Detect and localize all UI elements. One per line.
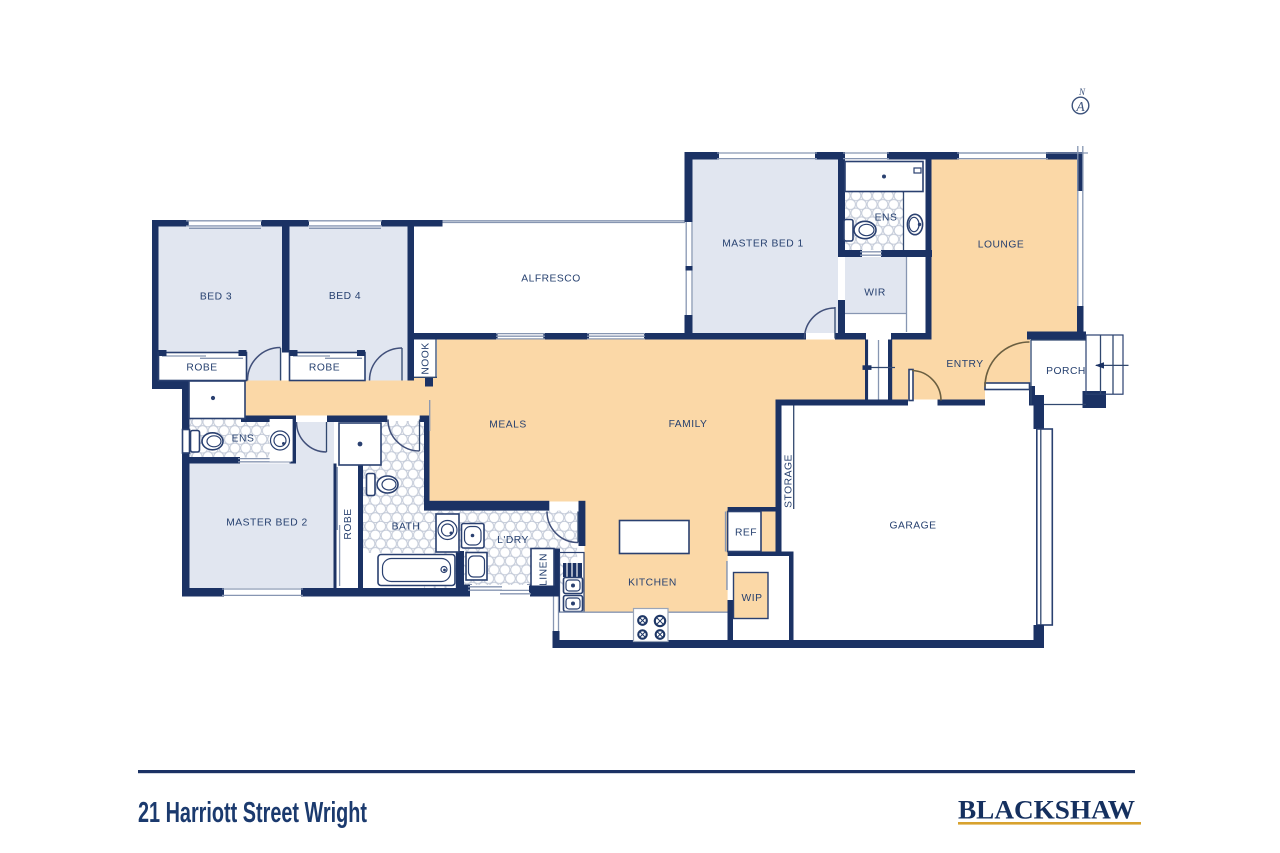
svg-text:MEALS: MEALS: [489, 420, 526, 431]
svg-text:NOOK: NOOK: [421, 342, 432, 374]
svg-text:BED 4: BED 4: [329, 291, 361, 302]
svg-text:ROBE: ROBE: [343, 508, 354, 539]
svg-text:ROBE: ROBE: [309, 363, 340, 374]
svg-text:WIP: WIP: [742, 593, 763, 604]
svg-text:BLACKSHAW: BLACKSHAW: [958, 796, 1135, 825]
svg-text:WIR: WIR: [864, 288, 886, 299]
svg-text:ENS: ENS: [875, 213, 898, 224]
svg-text:ENS: ENS: [232, 434, 255, 445]
svg-text:ENTRY: ENTRY: [946, 359, 983, 370]
svg-text:STORAGE: STORAGE: [784, 454, 795, 508]
svg-text:ALFRESCO: ALFRESCO: [521, 274, 581, 285]
svg-text:BATH: BATH: [392, 522, 421, 533]
svg-text:REF: REF: [735, 528, 757, 539]
svg-text:MASTER BED 1: MASTER BED 1: [722, 239, 804, 250]
svg-text:MASTER BED 2: MASTER BED 2: [226, 518, 308, 529]
svg-text:PORCH: PORCH: [1046, 366, 1086, 377]
svg-text:BED 3: BED 3: [200, 292, 232, 303]
svg-text:KITCHEN: KITCHEN: [628, 578, 677, 589]
svg-text:ROBE: ROBE: [186, 363, 217, 374]
svg-text:21 Harriott Street Wright: 21 Harriott Street Wright: [138, 797, 367, 829]
svg-text:L'DRY: L'DRY: [497, 535, 529, 546]
svg-text:LOUNGE: LOUNGE: [978, 240, 1025, 251]
svg-text:N: N: [1078, 87, 1086, 97]
svg-text:LINEN: LINEN: [539, 553, 550, 586]
svg-text:FAMILY: FAMILY: [669, 419, 708, 430]
svg-text:A: A: [1075, 99, 1085, 114]
svg-text:GARAGE: GARAGE: [889, 521, 936, 532]
